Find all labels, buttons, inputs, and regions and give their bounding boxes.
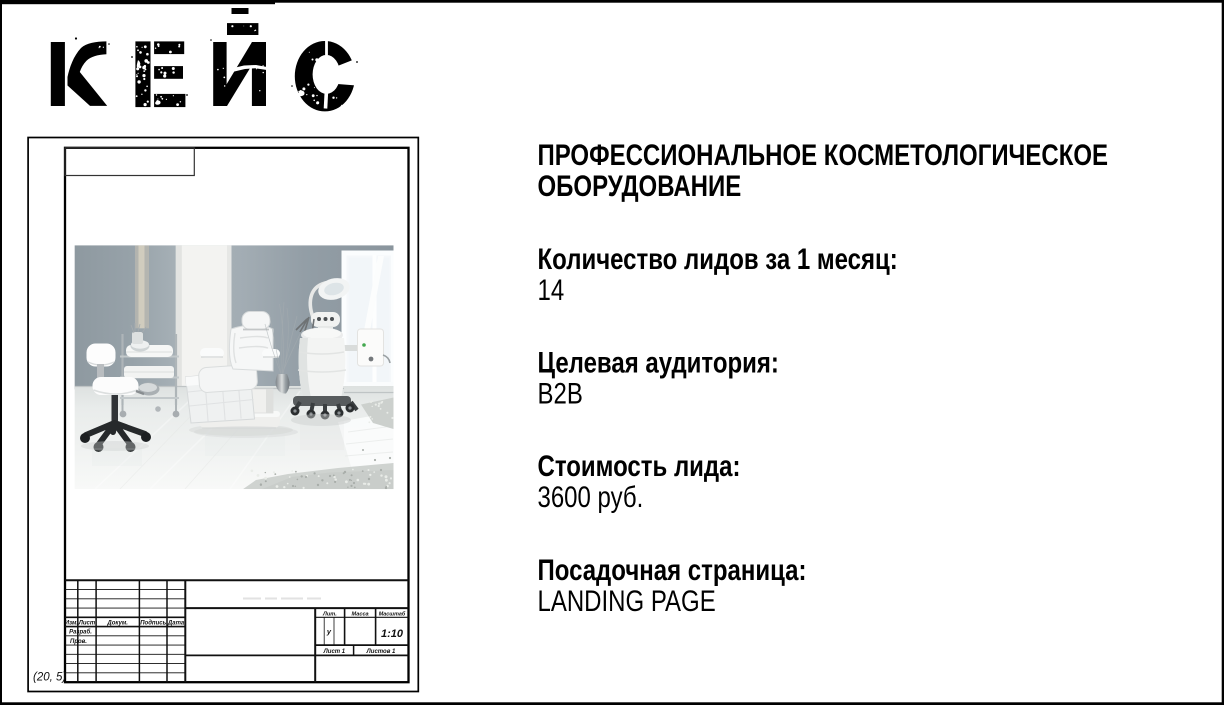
- svg-text:14: 14: [538, 272, 565, 306]
- svg-text:Целевая аудитория:: Целевая аудитория:: [538, 345, 779, 379]
- svg-text:у: у: [326, 627, 332, 636]
- svg-text:Стоимость лида:: Стоимость лида:: [538, 449, 741, 483]
- svg-text:Лит.: Лит.: [322, 611, 337, 617]
- svg-text:ПРОФЕССИОНАЛЬНОЕ КОСМЕТОЛОГИЧЕ: ПРОФЕССИОНАЛЬНОЕ КОСМЕТОЛОГИЧЕСКОЕ: [538, 137, 1109, 171]
- svg-text:Листов 1: Листов 1: [366, 649, 396, 655]
- svg-text:Изм.: Изм.: [65, 620, 79, 626]
- svg-text:3600 руб.: 3600 руб.: [538, 480, 644, 514]
- svg-text:Лист: Лист: [78, 620, 96, 626]
- svg-text:Посадочная страница:: Посадочная страница:: [538, 552, 807, 586]
- svg-text:LANDING PAGE: LANDING PAGE: [538, 583, 716, 617]
- svg-text:ОБОРУДОВАНИЕ: ОБОРУДОВАНИЕ: [538, 168, 742, 202]
- svg-text:Дата: Дата: [167, 620, 185, 626]
- svg-text:Лист 1: Лист 1: [323, 649, 346, 655]
- svg-text:Масса: Масса: [352, 611, 369, 617]
- svg-text:Пров.: Пров.: [70, 639, 87, 645]
- svg-text:(20, 5): (20, 5): [33, 672, 66, 684]
- svg-text:1:10: 1:10: [381, 628, 404, 640]
- svg-text:Масштаб: Масштаб: [379, 610, 406, 617]
- svg-text:Разраб.: Разраб.: [69, 629, 92, 636]
- svg-text:B2B: B2B: [538, 376, 583, 410]
- svg-text:Количество лидов за 1 месяц:: Количество лидов за 1 месяц:: [538, 241, 898, 275]
- svg-text:Докум.: Докум.: [106, 620, 128, 626]
- svg-text:Подпись: Подпись: [140, 620, 166, 626]
